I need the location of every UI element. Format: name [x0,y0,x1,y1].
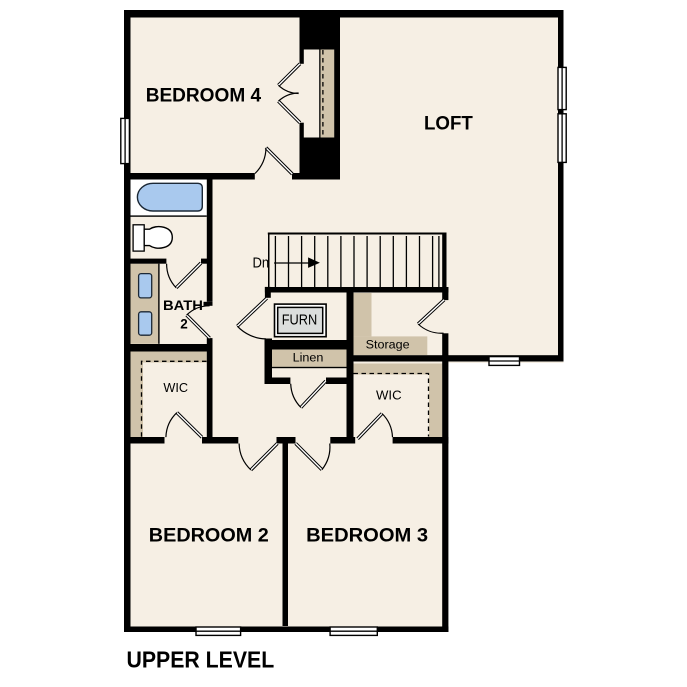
svg-text:2: 2 [180,317,188,332]
svg-text:WIC: WIC [376,388,402,403]
svg-text:Dn: Dn [252,255,269,271]
svg-text:Linen: Linen [293,351,324,365]
svg-text:BEDROOM 2: BEDROOM 2 [149,525,269,547]
svg-text:WIC: WIC [163,380,188,395]
svg-text:LOFT: LOFT [424,113,473,135]
svg-text:BEDROOM 4: BEDROOM 4 [146,85,261,107]
svg-text:BATH: BATH [163,298,203,313]
svg-text:Storage: Storage [366,337,410,351]
svg-text:UPPER LEVEL: UPPER LEVEL [127,647,275,673]
svg-text:BEDROOM 3: BEDROOM 3 [306,525,428,547]
svg-text:FURN: FURN [282,313,318,329]
